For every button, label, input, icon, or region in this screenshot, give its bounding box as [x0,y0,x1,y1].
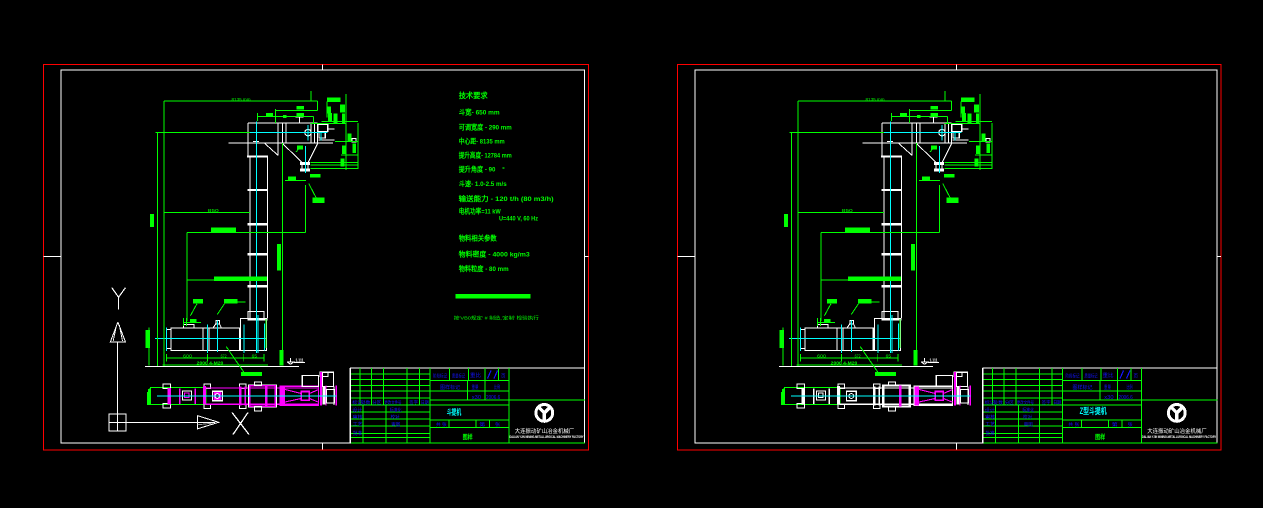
svg-text:大连振动矿山冶金机械厂: 大连振动矿山冶金机械厂 [1147,427,1207,435]
svg-text:物料相关参数: 物料相关参数 [459,234,498,243]
svg-text:U=440 V, 60 Hz: U=440 V, 60 Hz [499,216,538,223]
svg-text:标准化: 标准化 [1022,406,1034,413]
svg-text:图样标记: 图样标记 [440,384,460,391]
svg-text:更改文件号: 更改文件号 [1017,399,1034,406]
svg-text:签字: 签字 [1042,399,1051,405]
svg-text:共 张: 共 张 [1068,421,1079,428]
svg-text:大连振动矿山冶金机械厂: 大连振动矿山冶金机械厂 [515,427,575,435]
svg-text:65: 65 [252,353,258,358]
svg-text:阶段标记: 阶段标记 [433,373,447,380]
svg-text:2000 4-M20: 2000 4-M20 [197,360,224,365]
svg-text:签字: 签字 [409,399,418,405]
svg-text:阶段标记: 阶段标记 [1066,373,1080,380]
svg-text:校对: 校对 [391,413,400,420]
svg-text:输送能力 - 120 t/h (80 m3/h): 输送能力 - 120 t/h (80 m3/h) [459,194,554,203]
svg-text:DALIAN YJIN MINING-METALLURGIC: DALIAN YJIN MINING-METALLURGICAL MACHINE… [510,435,585,439]
svg-text:斗宽- 650 mm: 斗宽- 650 mm [459,107,500,116]
svg-text:斗速- 1.0-2.5 m/s: 斗速- 1.0-2.5 m/s [459,179,507,188]
svg-text:校对: 校对 [1023,413,1032,420]
svg-text:标准化: 标准化 [390,406,402,413]
svg-text:分区: 分区 [372,399,381,406]
svg-text:图样: 图样 [1095,432,1105,441]
svg-text:设计: 设计 [352,406,362,413]
svg-text:8135 mm: 8135 mm [232,97,251,103]
svg-text:审核: 审核 [353,413,363,420]
svg-text:重量: 重量 [1104,384,1111,391]
svg-text:技术要求: 技术要求 [459,91,489,100]
svg-text:850: 850 [842,208,854,213]
svg-text:批准: 批准 [353,430,362,437]
svg-text:中心距- 8135 mm: 中心距- 8135 mm [459,136,505,145]
svg-text:第: 第 [1112,421,1118,428]
svg-text:张: 张 [1128,421,1133,428]
svg-text:按'VB0规定' # 制造,'定制' 检验执行: 按'VB0规定' # 制造,'定制' 检验执行 [454,314,539,321]
svg-text:提升高度- 12784 mm: 提升高度- 12784 mm [458,150,512,159]
svg-text:8135 mm: 8135 mm [866,97,885,103]
svg-text:850: 850 [208,208,220,213]
svg-text:处数: 处数 [361,399,370,406]
svg-text:DALIAN YJIN MINING-METALLURGIC: DALIAN YJIN MINING-METALLURGICAL MACHINE… [1142,435,1217,439]
svg-text:张: 张 [495,421,500,428]
svg-text:x30: x30 [472,395,481,401]
svg-text:图样标记: 图样标记 [1073,384,1093,391]
svg-text:600: 600 [817,353,827,358]
svg-text:分区: 分区 [1005,399,1014,406]
svg-text:审图: 审图 [391,421,400,428]
svg-text:672: 672 [855,353,862,358]
svg-text:2006.6: 2006.6 [486,395,500,401]
svg-text:600: 600 [183,353,193,358]
svg-text:物料粒度 - 80 mm: 物料粒度 - 80 mm [459,264,509,273]
svg-text:比例: 比例 [494,384,500,391]
svg-text:批准: 批准 [986,430,995,437]
svg-text:质量标记: 质量标记 [1085,373,1098,380]
svg-text:页: 页 [501,374,506,380]
svg-text:更改文件号: 更改文件号 [384,399,401,406]
svg-text:审图: 审图 [1024,421,1033,428]
svg-text:设计: 设计 [985,406,995,413]
svg-text:物料密度 - 4000 kg/m3: 物料密度 - 4000 kg/m3 [459,249,530,258]
svg-text:图样: 图样 [463,432,473,441]
svg-text:比例: 比例 [1127,384,1133,391]
svg-text:工艺: 工艺 [985,422,995,428]
svg-text:处数: 处数 [994,399,1003,406]
svg-text:x30: x30 [1104,395,1113,401]
svg-text:2006.6: 2006.6 [1119,395,1133,401]
svg-text:提升角度 - 90 °: 提升角度 - 90 ° [458,164,505,173]
svg-text:Z型斗提机: Z型斗提机 [1080,405,1107,416]
svg-text:重比: 重比 [1103,371,1114,379]
svg-text:重比: 重比 [470,371,481,379]
svg-text:质量标记: 质量标记 [452,373,465,380]
svg-text:页: 页 [1134,374,1139,380]
svg-text:斗提机: 斗提机 [447,406,462,416]
svg-text:可调宽度 - 290 mm: 可调宽度 - 290 mm [459,122,512,131]
svg-text:共 张: 共 张 [436,421,447,428]
svg-text:电机功率=11 kW: 电机功率=11 kW [459,206,501,215]
svg-text:审核: 审核 [985,413,995,420]
svg-text:重量: 重量 [472,384,479,391]
svg-text:第: 第 [479,421,485,428]
svg-text:672: 672 [221,353,228,358]
svg-text:工艺: 工艺 [353,422,363,428]
svg-text:2000 4-M20: 2000 4-M20 [831,360,858,365]
svg-text:65: 65 [886,353,892,358]
